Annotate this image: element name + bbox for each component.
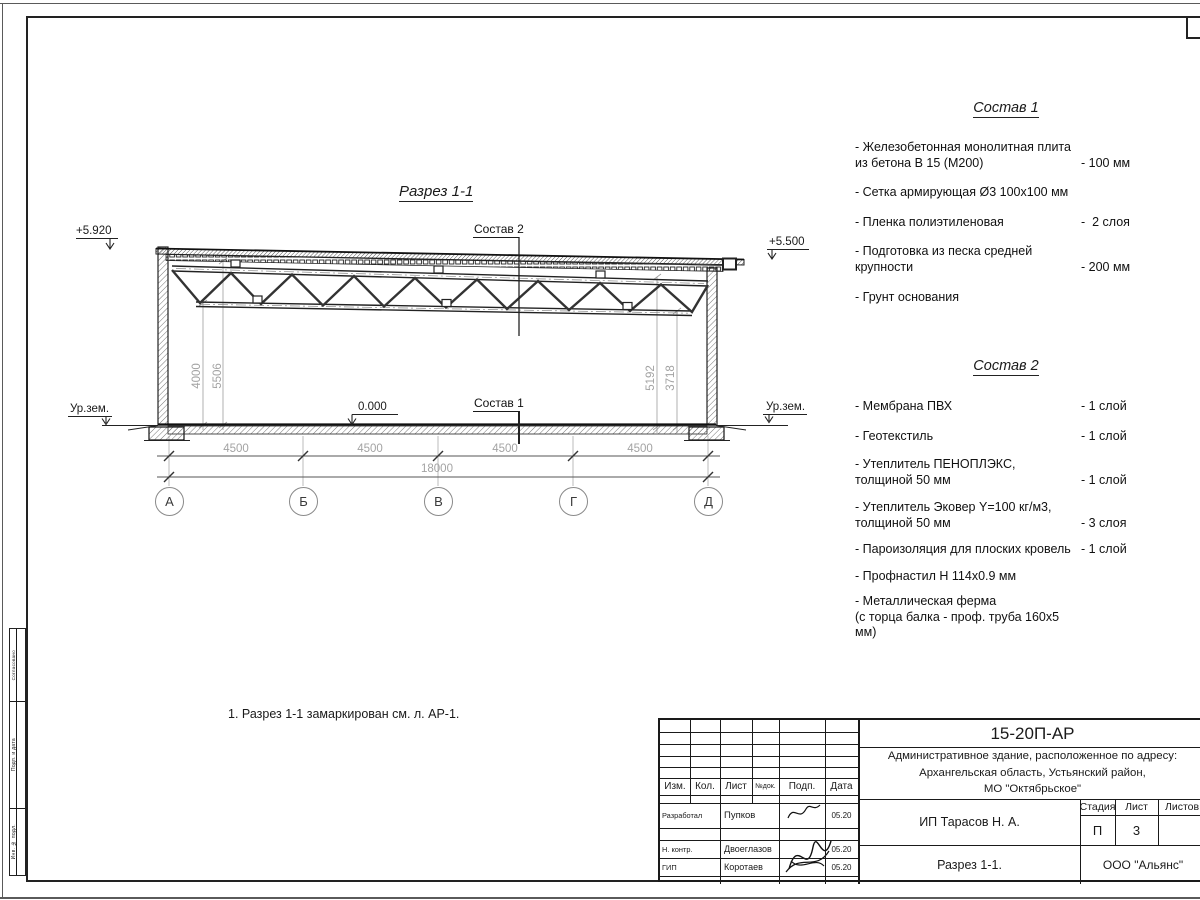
list-item: - Утеплитель Эковер Y=100 кг/м3, толщино… — [855, 500, 1081, 531]
dim-4500-2: 4500 — [340, 443, 400, 455]
side-stamp-label-2: Подп. и дата — [11, 738, 17, 771]
dim-left-4000: 4000 — [191, 356, 203, 396]
right-footing — [689, 427, 724, 440]
drawing-note: 1. Разрез 1-1 замаркирован см. л. АР-1. — [228, 707, 459, 721]
side-stamp-label-1: Согласовано — [11, 650, 16, 680]
callout-sostav1: Состав 1 — [472, 396, 526, 411]
tb-client: ИП Тарасов Н. А. — [859, 799, 1080, 845]
axis-bubble-b: Б — [289, 487, 318, 516]
elevation-right: +5.500 — [769, 236, 805, 248]
tb-company: ООО "Альянс" — [1080, 845, 1200, 884]
dim-4500-3: 4500 — [475, 443, 535, 455]
axis-bubble-g: Г — [559, 487, 588, 516]
tb-col-kol: Кол. — [690, 778, 720, 795]
tb-date-developer: 05.20 — [825, 803, 858, 828]
tb-col-izm: Изм. — [660, 778, 690, 795]
tb-role-gip: ГИП — [662, 858, 718, 876]
list-item: - Сетка армирующая Ø3 100х100 мм — [855, 185, 1081, 201]
dim-4500-1: 4500 — [206, 443, 266, 455]
tb-col-podp: Подп. — [779, 778, 825, 795]
list-item: - Пароизоляция для плоских кровель — [855, 542, 1081, 558]
tb-stage-label: Стадия — [1080, 799, 1115, 815]
floor-slab — [168, 426, 707, 434]
zero-level: 0.000 — [358, 401, 387, 413]
tb-col-ndok: №док. — [752, 778, 779, 795]
list-item: - Подготовка из песка средней крупности — [855, 244, 1081, 275]
callout-sostav2: Состав 2 — [472, 222, 526, 237]
list-item: - Пленка полиэтиленовая — [855, 215, 1081, 231]
tb-col-data: Дата — [825, 778, 858, 795]
roof-end-beam — [723, 259, 736, 270]
tb-role-ncontr: Н. контр. — [662, 840, 718, 858]
vertical-dim-lines — [199, 258, 681, 433]
sostav2-title: Состав 2 — [855, 358, 1157, 374]
ground-level-right: Ур.зем. — [766, 401, 805, 413]
tb-sheets-label: Листов — [1158, 799, 1200, 815]
axis-bubble-a: А — [155, 487, 184, 516]
sostav1-panel: Состав 1 — [855, 100, 1157, 116]
sostav2-items: - Мембрана ПВХ- 1 слой - Геотекстиль- 1 … — [855, 399, 1157, 641]
tb-col-list: Лист — [720, 778, 752, 795]
ground-level-left: Ур.зем. — [70, 403, 109, 415]
sostav1-title: Состав 1 — [855, 100, 1157, 116]
left-column — [158, 247, 168, 425]
sostav1-items: - Железобетонная монолитная плита из бет… — [855, 140, 1157, 306]
dim-4500-4: 4500 — [610, 443, 670, 455]
tb-stage-value: П — [1080, 815, 1115, 845]
list-item: - Профнастил Н 114х0.9 мм — [855, 569, 1081, 585]
tb-sheet-title: Разрез 1-1. — [859, 845, 1080, 884]
tb-sheet-value: 3 — [1115, 815, 1158, 845]
list-item: - Металлическая ферма (с торца балка - п… — [855, 594, 1081, 641]
tb-name-developer: Пупков — [724, 803, 779, 828]
tb-name-gip: Коротаев — [724, 858, 779, 876]
dim-left-5506: 5506 — [212, 356, 224, 396]
dim-total-18000: 18000 — [407, 463, 467, 475]
tb-project-name: Административное здание, расположенное п… — [859, 747, 1200, 799]
tb-sheet-label: Лист — [1115, 799, 1158, 815]
side-stamp: Согласовано Подп. и дата Инв. № подл. — [9, 628, 26, 876]
left-footing — [149, 427, 184, 440]
tb-role-developer: Разработал — [662, 803, 718, 828]
list-item: - Грунт основания — [855, 290, 1081, 306]
right-column — [707, 268, 717, 425]
title-block: Изм. Кол. Лист №док. Подп. Дата Разработ… — [658, 718, 1200, 882]
side-stamp-label-3: Инв. № подл. — [11, 824, 17, 859]
dim-right-5192: 5192 — [645, 358, 657, 398]
sostav2-panel: Состав 2 — [855, 358, 1157, 374]
axis-bubble-v: В — [424, 487, 453, 516]
list-item: - Утеплитель ПЕНОПЛЭКС, толщиной 50 мм — [855, 457, 1081, 488]
list-item: - Железобетонная монолитная плита из бет… — [855, 140, 1081, 171]
list-item: - Мембрана ПВХ — [855, 399, 1081, 415]
elevation-left: +5.920 — [76, 225, 112, 237]
tb-date-ncontr: 05.20 — [825, 840, 858, 858]
list-item: - Геотекстиль — [855, 429, 1081, 445]
section-title: Разрез 1-1 — [399, 183, 473, 200]
tb-document-code: 15-20П-АР — [859, 720, 1200, 747]
axis-bubble-d: Д — [694, 487, 723, 516]
tb-name-ncontr: Двоеглазов — [724, 840, 779, 858]
tb-date-gip: 05.20 — [825, 858, 858, 876]
dim-right-3718: 3718 — [665, 358, 677, 398]
